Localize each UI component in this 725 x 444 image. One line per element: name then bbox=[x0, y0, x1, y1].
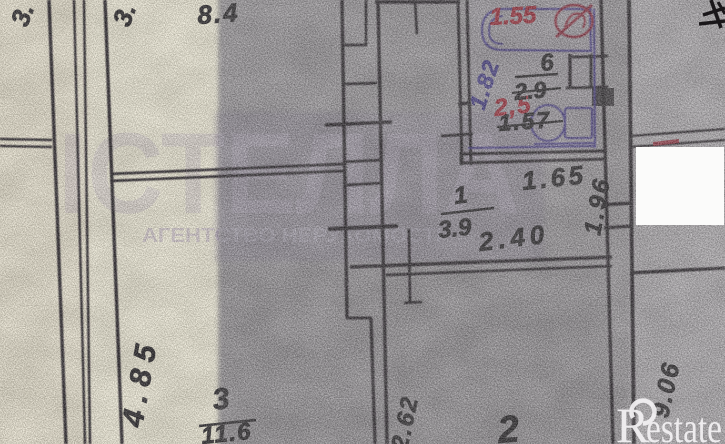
svg-text:estate: estate bbox=[646, 406, 722, 444]
